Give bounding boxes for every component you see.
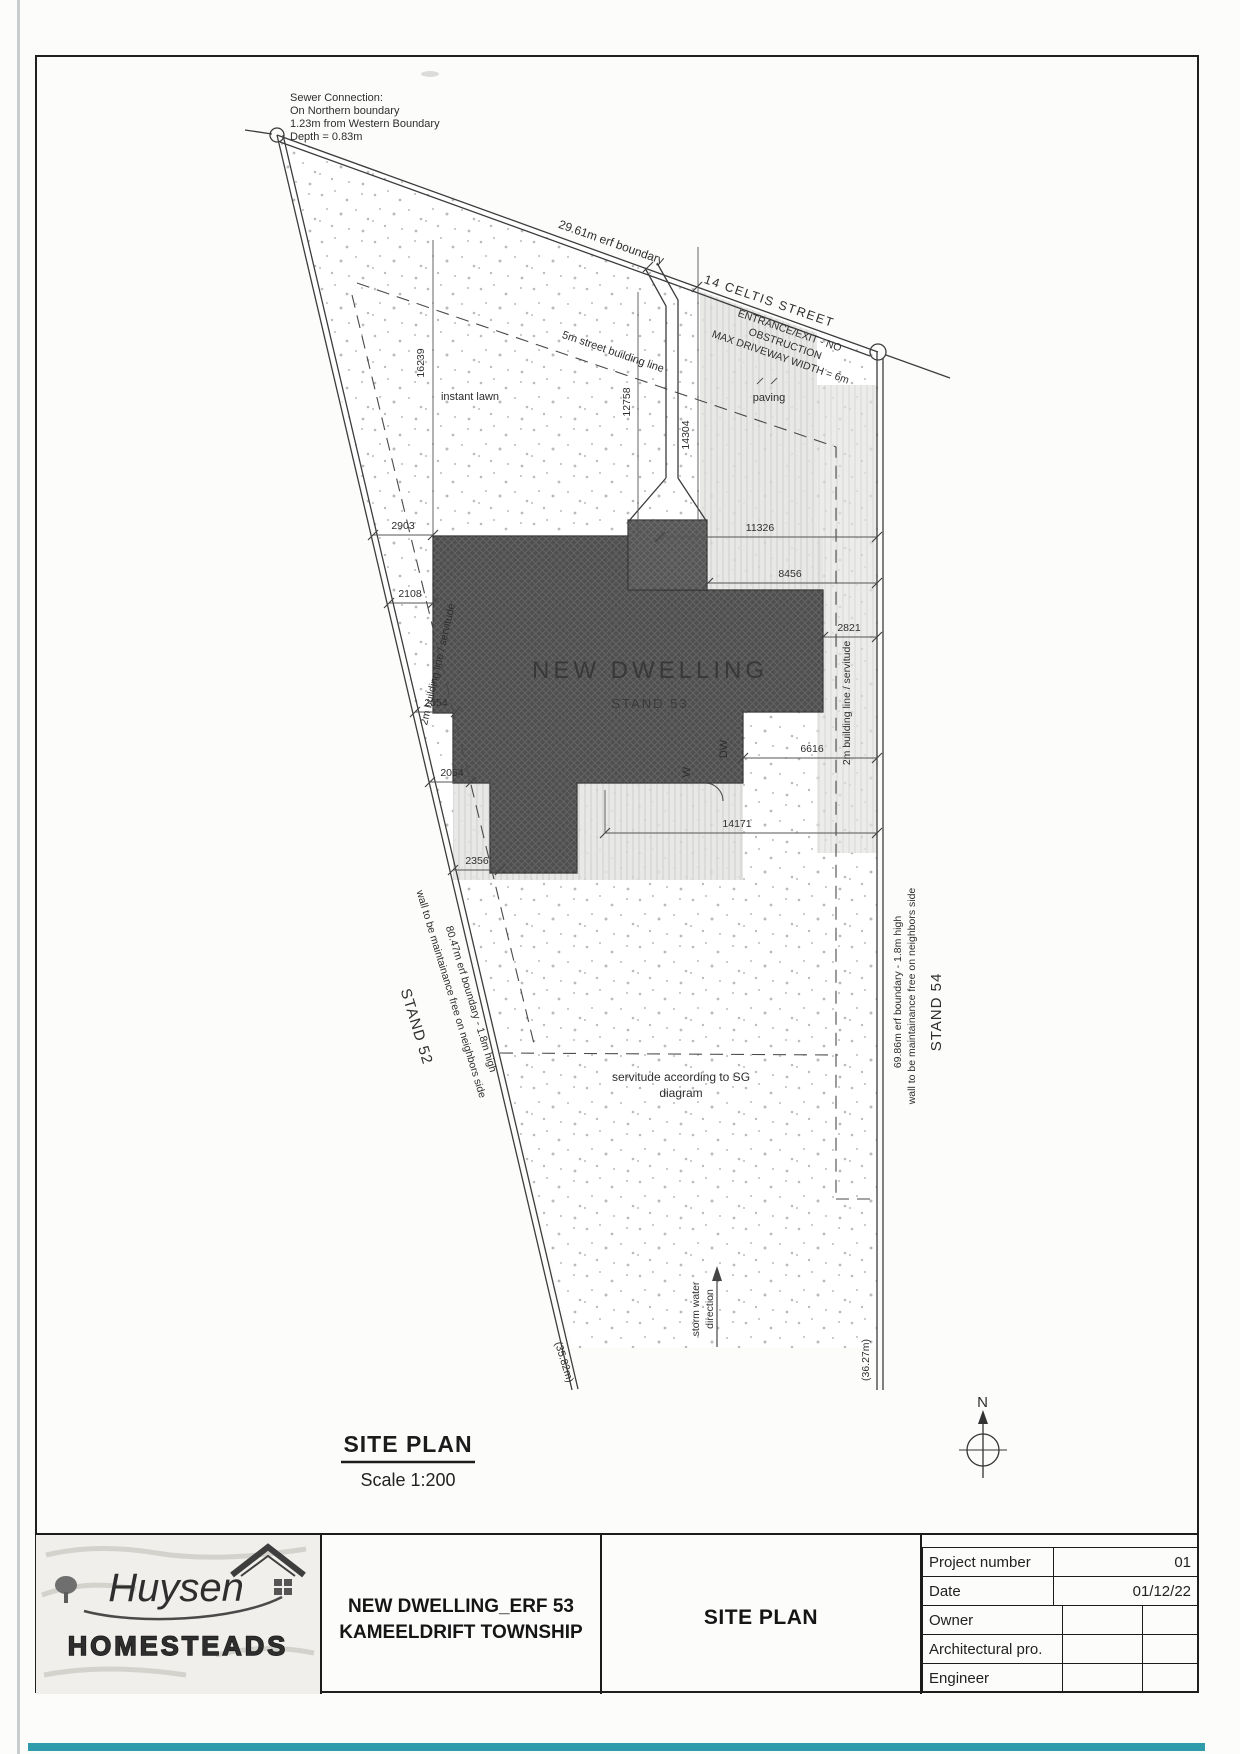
street-continuation-line: [886, 355, 950, 378]
drawing-heading: SITE PLAN Scale 1:200: [341, 1431, 475, 1490]
field-value: 01: [1054, 1554, 1198, 1571]
dim-14304: 14304: [680, 420, 692, 449]
sewer-note-line2: On Northern boundary: [290, 105, 400, 117]
field-value-2: [1143, 1635, 1198, 1663]
scanned-sheet: Sewer Connection: On Northern boundary 1…: [0, 0, 1240, 1754]
dim-6616: 6616: [800, 743, 824, 755]
project-title-line2: KAMEELDRIFT TOWNSHIP: [339, 1620, 582, 1646]
dim-16239: 16239: [415, 348, 427, 377]
project-info-cell: Project number 01 Date 01/12/22 Owner Ar…: [920, 1535, 1198, 1694]
huysen-homesteads-logo: Huysen HOMESTEADS: [36, 1535, 320, 1692]
logo-caps-text: HOMESTEADS: [68, 1631, 289, 1661]
field-label: Date: [923, 1577, 1054, 1605]
dim-2356: 2356: [465, 855, 489, 867]
site-plan-drawing: Sewer Connection: On Northern boundary 1…: [0, 0, 1240, 1754]
sg-servitude-note-line1: servitude according to SG: [612, 1070, 750, 1084]
field-row-engineer: Engineer: [923, 1664, 1198, 1693]
east-building-line-label: 2m building line / servitude: [841, 641, 853, 765]
field-value-2: [1143, 1664, 1198, 1692]
east-boundary-length: (36.27m): [860, 1339, 872, 1381]
dim-12758: 12758: [621, 387, 633, 416]
dim-2903: 2903: [391, 520, 415, 532]
north-arrowhead: [978, 1410, 988, 1424]
tree-trunk: [64, 1592, 68, 1603]
sheet-title: SITE PLAN: [704, 1606, 818, 1630]
dwelling-stand-label: STAND 53: [611, 696, 688, 711]
dim-2108: 2108: [398, 588, 422, 600]
field-value-2: [1143, 1606, 1198, 1634]
dwelling-title: NEW DWELLING: [532, 657, 768, 684]
stand-52-label: STAND 52: [397, 987, 436, 1067]
project-title-line1: NEW DWELLING_ERF 53: [348, 1594, 574, 1620]
dim-2821: 2821: [837, 622, 861, 634]
plan-heading-title: SITE PLAN: [343, 1431, 472, 1457]
sg-servitude-note-line2: diagram: [659, 1086, 702, 1100]
field-label: Project number: [923, 1548, 1054, 1576]
instant-lawn-label: instant lawn: [441, 391, 499, 403]
sewer-note-line3: 1.23m from Western Boundary: [290, 118, 440, 130]
storm-water-label-line1: storm water: [690, 1281, 702, 1336]
stand-54-label: STAND 54: [928, 973, 945, 1052]
project-info-table: Project number 01 Date 01/12/22 Owner Ar…: [922, 1547, 1198, 1693]
field-value: [1063, 1635, 1143, 1663]
field-value: [1063, 1664, 1143, 1692]
logo-script-text: Huysen: [108, 1566, 244, 1610]
sewer-note-line1: Sewer Connection:: [290, 92, 383, 104]
dim-8456: 8456: [778, 568, 802, 580]
dim-2054-b: 2054: [440, 767, 464, 779]
dim-14171: 14171: [722, 818, 751, 830]
storm-water-label-line2: direction: [704, 1289, 716, 1329]
project-title-cell: NEW DWELLING_ERF 53 KAMEELDRIFT TOWNSHIP: [320, 1535, 600, 1694]
tree-icon: [55, 1576, 77, 1594]
east-boundary-note-line1: 69.86m erf boundary - 1.8m high: [892, 916, 904, 1068]
sheet-title-cell: SITE PLAN: [600, 1535, 920, 1694]
field-label: Architectural pro.: [923, 1635, 1063, 1663]
north-label: N: [977, 1394, 989, 1411]
sewer-note: Sewer Connection: On Northern boundary 1…: [290, 92, 440, 143]
title-block: Huysen HOMESTEADS NEW DWELLING_ERF 53 KA…: [36, 1533, 1198, 1692]
dim-11326: 11326: [746, 522, 775, 534]
field-value: 01/12/22: [1054, 1583, 1198, 1600]
north-arrow: N: [959, 1394, 1007, 1478]
logo-cell: Huysen HOMESTEADS: [36, 1535, 320, 1694]
field-row-project-number: Project number 01: [923, 1548, 1198, 1577]
door-label-dw: DW: [718, 739, 730, 758]
door-label-w: W: [681, 766, 693, 777]
sewer-leader-line: [245, 130, 272, 134]
plan-heading-scale: Scale 1:200: [360, 1470, 455, 1490]
paving-label: paving: [753, 392, 785, 404]
field-value: [1063, 1606, 1143, 1634]
field-label: Owner: [923, 1606, 1063, 1634]
field-label: Engineer: [923, 1664, 1063, 1692]
window-icon: [274, 1579, 292, 1595]
field-row-date: Date 01/12/22: [923, 1577, 1198, 1606]
field-row-owner: Owner: [923, 1606, 1198, 1635]
field-row-architectural-pro: Architectural pro.: [923, 1635, 1198, 1664]
sewer-note-line4: Depth = 0.83m: [290, 131, 362, 143]
scan-smudge: [421, 71, 439, 77]
scanner-teal-edge: [28, 1743, 1205, 1751]
east-boundary-note-line2: wall to be maintainance free on neighbor…: [906, 888, 918, 1106]
